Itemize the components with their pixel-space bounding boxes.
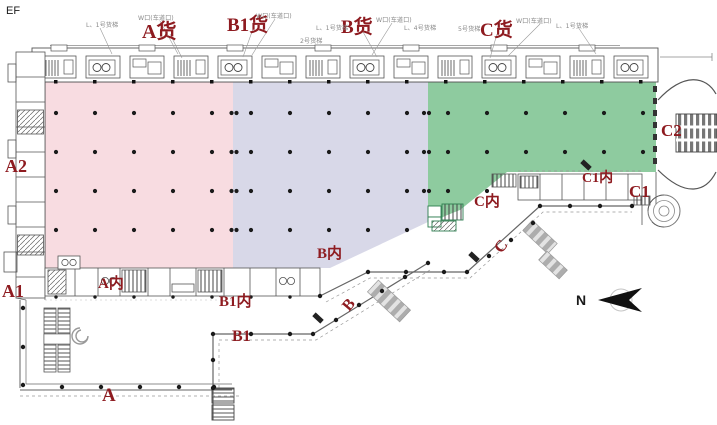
label-a1: A1: [2, 281, 24, 301]
dock-module: [438, 56, 472, 78]
column-dot: [446, 111, 450, 115]
zone-a-hall: [45, 82, 233, 268]
dock-canopy: [579, 45, 595, 51]
column-tick: [132, 80, 136, 84]
callout-lift: L、4号货梯: [404, 24, 436, 32]
column-dot: [318, 294, 322, 298]
column-tick: [561, 80, 565, 84]
column-dot: [327, 189, 331, 193]
column-dot: [405, 189, 409, 193]
kiosk-box: [58, 256, 80, 269]
column-dot: [366, 150, 370, 154]
column-dot: [422, 189, 426, 193]
column-dot: [132, 189, 136, 193]
column-dot: [132, 111, 136, 115]
column-dot: [229, 111, 233, 115]
zone-c-tip-rooms: [428, 204, 463, 231]
edge-dash: [653, 86, 657, 92]
column-tick: [210, 80, 214, 84]
callout-gate: W口(车道口): [138, 14, 174, 22]
column-dot: [403, 275, 407, 279]
column-dot: [132, 228, 136, 232]
label-c1: C1: [629, 182, 650, 201]
column-dot: [132, 150, 136, 154]
column-dot: [171, 189, 175, 193]
column-dot: [177, 385, 181, 389]
label-c2: C2: [661, 121, 682, 140]
column-dot: [487, 254, 491, 258]
column-tick: [522, 80, 526, 84]
column-dot: [132, 295, 135, 298]
column-dot: [380, 289, 384, 293]
dock-module: [306, 56, 340, 78]
column-dot: [641, 111, 645, 115]
label-b: B: [339, 295, 359, 314]
north-label: N: [576, 292, 586, 308]
column-dot: [602, 111, 606, 115]
column-dot: [446, 150, 450, 154]
callout-gate: W口(车道口): [256, 12, 292, 20]
column-dot: [427, 189, 431, 193]
column-dot: [563, 111, 567, 115]
column-dot: [426, 261, 430, 265]
column-dot: [405, 111, 409, 115]
column-dot: [598, 204, 602, 208]
spiral-stair-icon: [72, 328, 88, 344]
road-curve: [658, 80, 716, 100]
dock-canopy: [51, 45, 67, 51]
column-dot: [485, 189, 489, 193]
label-c-cargo: C货: [480, 18, 513, 41]
column-dot: [563, 150, 567, 154]
ramp-icon: [523, 220, 557, 253]
label-b1-inner: B1内: [219, 292, 252, 310]
dock-canopy: [315, 45, 331, 51]
column-dot: [288, 150, 292, 154]
column-dot: [366, 270, 370, 274]
column-tick: [288, 80, 292, 84]
zone-b-hall: [233, 82, 428, 268]
column-dot: [446, 189, 450, 193]
column-dot: [210, 189, 214, 193]
edge-dash: [653, 110, 657, 116]
dock-module: [42, 56, 76, 78]
callout-lift: 5号货梯: [458, 25, 481, 33]
label-a: A: [102, 385, 116, 406]
label-a-inner: A内: [98, 274, 124, 292]
column-dot: [21, 383, 25, 387]
column-dot: [249, 111, 253, 115]
column-dot: [422, 150, 426, 154]
c2-bridge-icon: [676, 114, 717, 152]
column-dot: [524, 111, 528, 115]
column-dot: [234, 189, 238, 193]
column-dot: [60, 385, 64, 389]
edge-dash: [653, 146, 657, 152]
edge-dash: [653, 122, 657, 128]
road-curve: [658, 170, 716, 189]
dock-canopy: [227, 45, 243, 51]
column-dot: [54, 189, 58, 193]
column-tick: [366, 80, 370, 84]
column-dot: [630, 204, 634, 208]
column-dot: [427, 111, 431, 115]
column-dot: [327, 228, 331, 232]
column-dot: [249, 228, 253, 232]
callout-lift: L、1号货梯: [316, 24, 348, 32]
column-dot: [288, 295, 291, 298]
column-dot: [21, 345, 25, 349]
column-dot: [54, 295, 57, 298]
column-dot: [531, 221, 535, 225]
callout-lift: L、1号货梯: [556, 22, 588, 30]
column-dot: [54, 228, 58, 232]
column-dot: [210, 228, 214, 232]
column-dot: [93, 111, 97, 115]
column-dot: [485, 111, 489, 115]
floor-plan-page: N EF A货 B1货 B货 C货 A2 A1 A内 B1内 B内 C内 C1内…: [0, 0, 717, 425]
column-dot: [538, 204, 542, 208]
column-dot: [509, 238, 513, 242]
north-arrow: N: [576, 288, 642, 312]
column-dot: [93, 228, 97, 232]
column-dot: [54, 111, 58, 115]
dock-canopy: [139, 45, 155, 51]
column-dot: [366, 111, 370, 115]
label-c1-inner: C1内: [582, 169, 613, 186]
column-dot: [210, 111, 214, 115]
column-dot: [249, 189, 253, 193]
column-dot: [288, 228, 292, 232]
column-dot: [404, 270, 408, 274]
callout-lift: 2号货梯: [300, 37, 323, 45]
escalator-cell-icon: [442, 204, 463, 220]
column-tick: [444, 80, 448, 84]
hall-zones: [45, 69, 656, 268]
stairs-icon: [212, 405, 234, 420]
column-dot: [171, 111, 175, 115]
column-dot: [405, 228, 409, 232]
floor-plan-canvas: N EF A货 B1货 B货 C货 A2 A1 A内 B1内 B内 C内 C1内…: [0, 0, 717, 425]
column-dot: [485, 150, 489, 154]
callout-gate: W口(车道口): [376, 16, 412, 24]
column-dot: [366, 189, 370, 193]
column-dot: [524, 150, 528, 154]
column-tick: [327, 80, 331, 84]
column-tick: [405, 80, 409, 84]
column-dot: [288, 332, 292, 336]
column-dot: [249, 150, 253, 154]
escalator-cell-icon: [122, 270, 146, 292]
column-tick: [54, 80, 58, 84]
column-dot: [171, 228, 175, 232]
label-c-inner: C内: [474, 192, 500, 210]
column-dot: [171, 295, 174, 298]
c2-bridge-group: [648, 80, 717, 227]
column-dot: [568, 204, 572, 208]
edge-dash: [653, 134, 657, 140]
stairs-icon: [212, 388, 234, 403]
label-b1: B1: [232, 328, 251, 345]
ramp-icon: [539, 251, 568, 279]
column-dot: [465, 270, 469, 274]
stair-cell-icon: [18, 110, 44, 134]
column-dot: [234, 228, 238, 232]
column-tick: [249, 80, 253, 84]
column-dot: [229, 150, 233, 154]
column-tick: [93, 80, 97, 84]
dock-module: [174, 56, 208, 78]
callout-lift: L、1号货梯: [86, 21, 118, 29]
column-dot: [334, 318, 338, 322]
column-dot: [93, 189, 97, 193]
stair-cell-icon: [48, 270, 66, 294]
column-tick: [483, 80, 487, 84]
dock-canopy: [403, 45, 419, 51]
column-dot: [234, 150, 238, 154]
column-dot: [21, 306, 25, 310]
column-dot: [210, 150, 214, 154]
column-dot: [327, 111, 331, 115]
stair-cell-icon: [18, 235, 44, 255]
callout-gate: W口(车道口): [516, 17, 552, 25]
column-tick: [600, 80, 604, 84]
column-dot: [212, 385, 216, 389]
column-dot: [327, 150, 331, 154]
edge-dash: [653, 158, 657, 164]
column-dot: [427, 150, 431, 154]
column-dot: [54, 150, 58, 154]
column-dot: [311, 332, 315, 336]
column-dot: [366, 228, 370, 232]
escalator-cell-icon: [198, 270, 222, 292]
corner-label: EF: [6, 5, 20, 17]
column-dot: [602, 150, 606, 154]
column-dot: [171, 150, 175, 154]
column-dot: [211, 332, 215, 336]
column-dot: [229, 189, 233, 193]
label-a2: A2: [5, 156, 27, 176]
column-tick: [639, 80, 643, 84]
edge-dash: [653, 98, 657, 104]
column-dot: [229, 228, 233, 232]
label-c: C: [491, 237, 511, 257]
column-dot: [93, 150, 97, 154]
escalator-cell-icon: [520, 176, 538, 188]
column-dot: [234, 111, 238, 115]
column-tick: [171, 80, 175, 84]
column-dot: [641, 150, 645, 154]
column-dot: [442, 270, 446, 274]
label-b-inner: B内: [317, 244, 342, 262]
dock-module: [570, 56, 604, 78]
column-dot: [211, 358, 215, 362]
column-dot: [288, 111, 292, 115]
column-dot: [288, 189, 292, 193]
column-dot: [210, 295, 213, 298]
north-arrow-icon: [598, 288, 642, 312]
column-dot: [138, 385, 142, 389]
column-dot: [405, 150, 409, 154]
column-dot: [422, 111, 426, 115]
escalator-ramp-icon: [492, 174, 516, 187]
column-dot: [93, 295, 96, 298]
label-a-cargo: A货: [142, 19, 176, 43]
